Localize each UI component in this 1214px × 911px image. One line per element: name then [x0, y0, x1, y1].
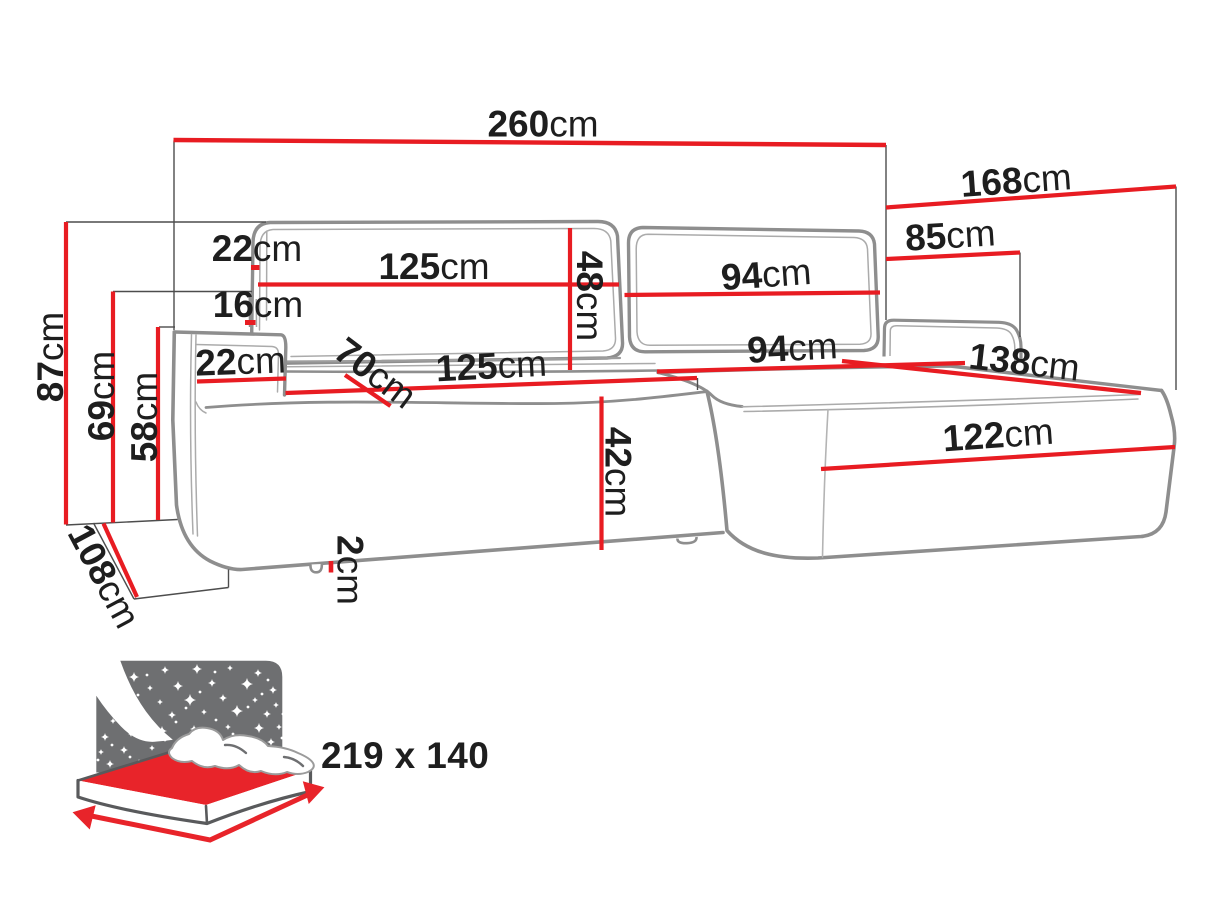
svg-text:58cm: 58cm — [124, 372, 165, 462]
svg-text:2cm: 2cm — [330, 535, 371, 605]
svg-text:42cm: 42cm — [598, 427, 639, 517]
svg-text:108cm: 108cm — [60, 517, 148, 634]
svg-text:94cm: 94cm — [720, 251, 813, 298]
svg-text:168cm: 168cm — [959, 156, 1073, 205]
svg-text:94cm: 94cm — [746, 325, 839, 371]
svg-text:69cm: 69cm — [81, 351, 122, 441]
svg-text:48cm: 48cm — [569, 251, 610, 341]
svg-text:260cm: 260cm — [487, 104, 598, 145]
svg-text:16cm: 16cm — [213, 284, 303, 325]
svg-text:125cm: 125cm — [435, 343, 548, 390]
svg-text:22cm: 22cm — [195, 339, 287, 383]
svg-text:122cm: 122cm — [941, 411, 1055, 460]
svg-text:219 x 140: 219 x 140 — [321, 735, 489, 776]
svg-text:125cm: 125cm — [378, 246, 489, 287]
svg-text:87cm: 87cm — [30, 312, 71, 402]
svg-text:22cm: 22cm — [212, 228, 302, 269]
svg-text:85cm: 85cm — [904, 212, 997, 258]
